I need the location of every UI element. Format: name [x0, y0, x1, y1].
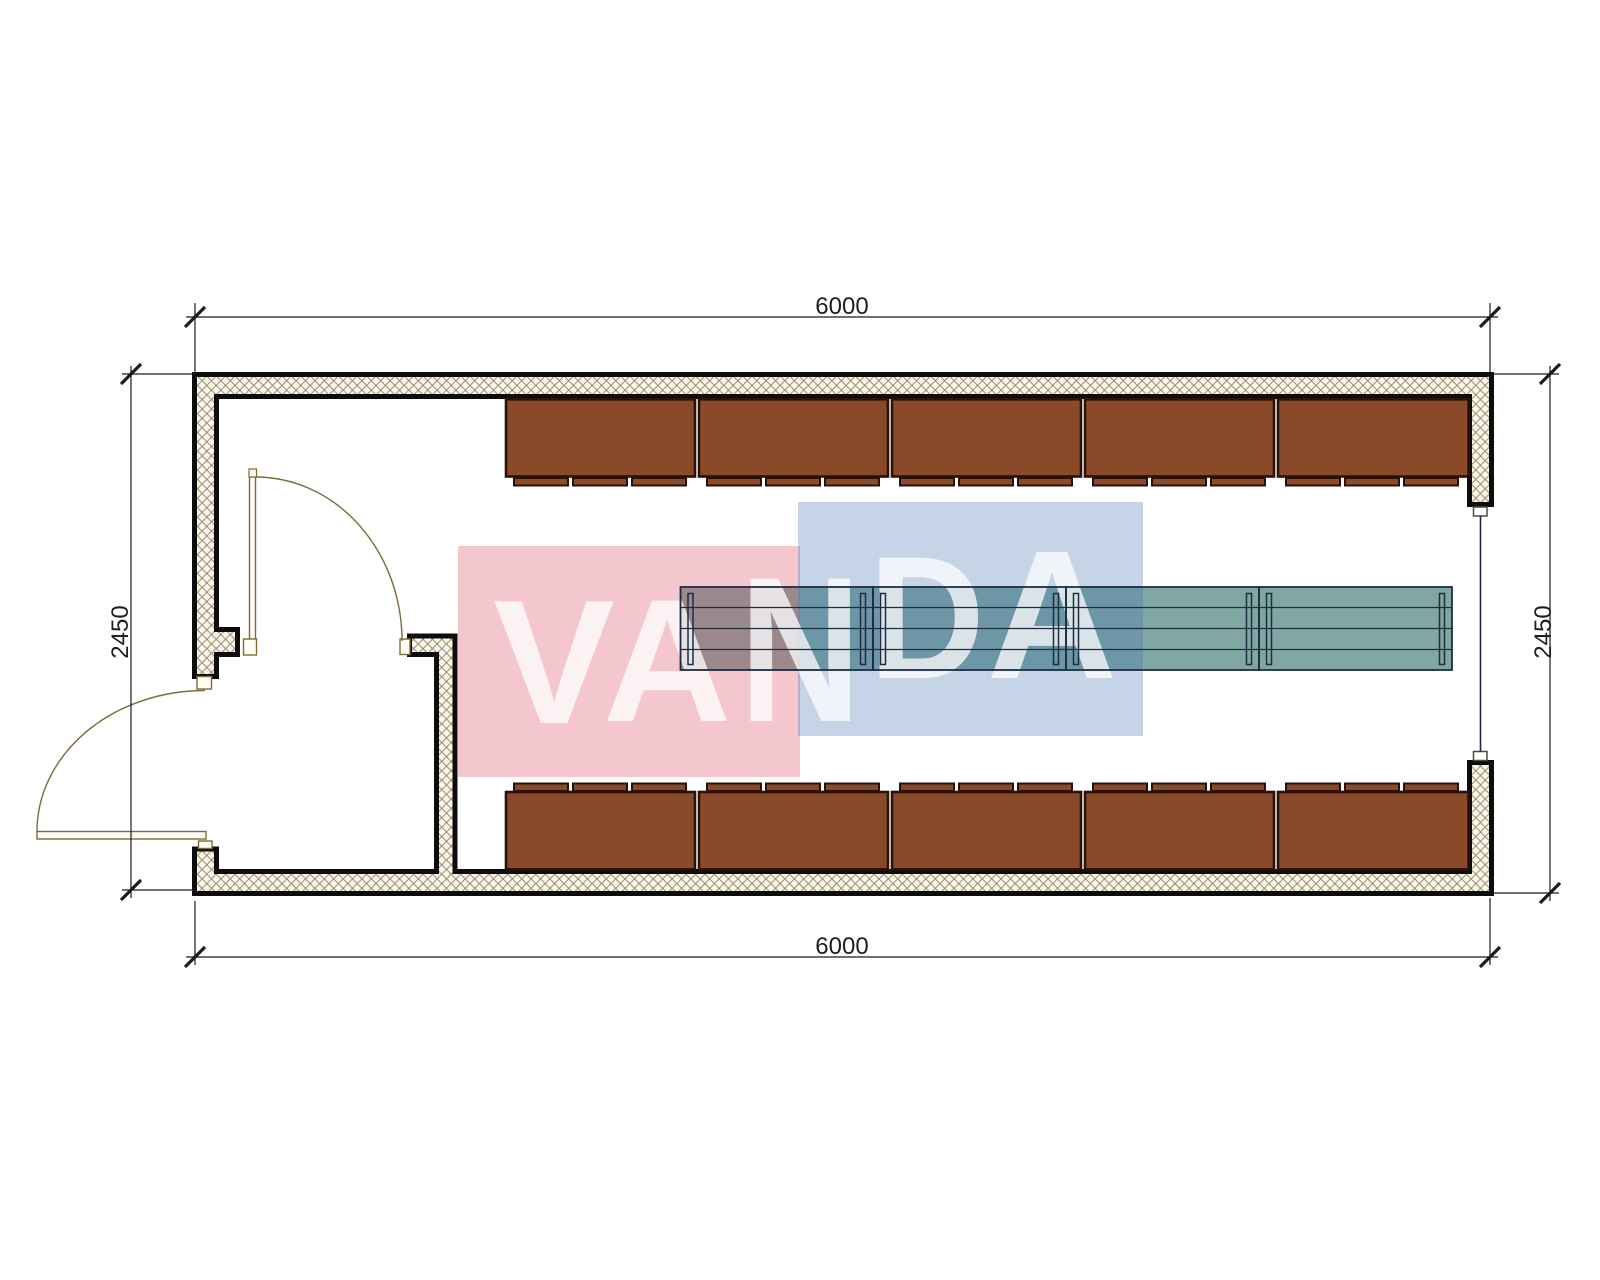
- svg-text:2450: 2450: [107, 605, 134, 658]
- svg-text:V: V: [493, 563, 615, 761]
- svg-text:2450: 2450: [1530, 605, 1557, 658]
- svg-text:6000: 6000: [815, 933, 868, 960]
- svg-text:A: A: [987, 512, 1118, 717]
- svg-text:N: N: [739, 535, 861, 766]
- svg-text:6000: 6000: [815, 293, 868, 320]
- svg-text:A: A: [603, 564, 732, 759]
